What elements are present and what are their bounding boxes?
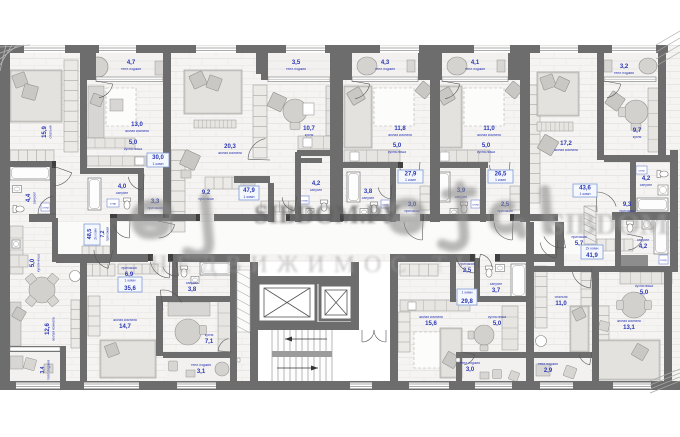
svg-text:27,9: 27,9: [405, 172, 417, 178]
svg-text:спальня: спальня: [49, 125, 53, 138]
svg-text:жилая комната: жилая комната: [113, 318, 137, 322]
svg-text:кухня-ниша: кухня-ниша: [488, 315, 506, 319]
svg-text:жилая комната: жилая комната: [419, 315, 443, 319]
svg-text:тепл.лоджия: тепл.лоджия: [47, 360, 51, 380]
svg-text:жилая комната: жилая комната: [218, 151, 242, 155]
svg-text:тепл.лоджия: тепл.лоджия: [191, 363, 211, 367]
svg-text:санузел: санузел: [186, 281, 198, 285]
svg-text:3,8: 3,8: [364, 189, 373, 195]
svg-text:29,8: 29,8: [461, 299, 473, 305]
svg-text:3,2: 3,2: [620, 64, 629, 70]
svg-text:17,2: 17,2: [560, 141, 572, 147]
svg-text:11,0: 11,0: [555, 301, 567, 307]
svg-text:4,2: 4,2: [642, 176, 651, 182]
svg-text:4,2: 4,2: [639, 244, 648, 250]
svg-text:жилая комната: жилая комната: [125, 129, 149, 133]
svg-text:14,7: 14,7: [119, 324, 131, 330]
svg-text:3,8: 3,8: [188, 287, 197, 293]
svg-text:9,7: 9,7: [633, 128, 642, 134]
svg-text:стир: стир: [660, 258, 667, 262]
svg-text:ТЬ: ТЬ: [432, 252, 478, 278]
svg-text:4,0: 4,0: [118, 184, 127, 190]
svg-text:санузел: санузел: [490, 282, 502, 286]
svg-text:стир: стир: [638, 169, 645, 173]
svg-text:кухня: кухня: [205, 333, 214, 337]
svg-text:жилая комната: жилая комната: [617, 319, 641, 323]
svg-text:13,1: 13,1: [623, 325, 635, 331]
svg-text:7,1: 7,1: [205, 339, 214, 345]
svg-text:тепл.лоджия: тепл.лоджия: [465, 67, 485, 71]
svg-text:4,2: 4,2: [312, 181, 321, 187]
svg-text:1 комн: 1 комн: [405, 178, 416, 182]
svg-text:2,9: 2,9: [544, 368, 553, 374]
svg-text:кухня: кухня: [633, 135, 642, 139]
svg-text:5,0: 5,0: [493, 321, 502, 327]
svg-text:12,6: 12,6: [45, 323, 51, 335]
svg-text:стир: стир: [42, 206, 49, 210]
svg-text:1 комн: 1 комн: [243, 195, 254, 199]
svg-text:4,4: 4,4: [26, 193, 32, 202]
svg-text:10,7: 10,7: [303, 126, 315, 132]
svg-text:35,6: 35,6: [124, 286, 136, 292]
svg-text:5,0: 5,0: [30, 258, 36, 267]
svg-text:санузел: санузел: [640, 183, 652, 187]
svg-text:стир: стир: [472, 203, 479, 207]
svg-text:15,6: 15,6: [425, 321, 437, 327]
svg-text:48,5: 48,5: [87, 229, 93, 240]
svg-text:3,5: 3,5: [292, 60, 301, 66]
svg-text:41,9: 41,9: [586, 253, 598, 259]
svg-text:5,0: 5,0: [129, 140, 138, 146]
svg-text:жилая комната: жилая комната: [52, 317, 56, 341]
svg-text:13,0: 13,0: [131, 122, 143, 128]
svg-text:3,1: 3,1: [197, 369, 206, 375]
svg-text:1 комн: 1 комн: [124, 279, 135, 283]
svg-text:3,4: 3,4: [40, 366, 46, 373]
svg-text:1 комн: 1 комн: [495, 178, 506, 182]
svg-text:1 комн: 1 комн: [461, 291, 472, 295]
svg-text:2х комн: 2х комн: [94, 228, 98, 240]
svg-text:жилая комната: жилая комната: [388, 133, 412, 137]
svg-text:стир: стир: [110, 202, 117, 206]
svg-text:кухня-ниша: кухня-ниша: [388, 150, 406, 154]
svg-text:5,0: 5,0: [482, 143, 491, 149]
svg-text:НЕДВИЖИМОС: НЕДВИЖИМОС: [150, 252, 416, 278]
svg-text:жилая комната: жилая комната: [477, 133, 501, 137]
svg-text:SIBDOM.РУ: SIBDOM.РУ: [254, 200, 400, 229]
svg-text:тепл.лоджия: тепл.лоджия: [286, 67, 306, 71]
svg-text:2х комн: 2х комн: [586, 247, 599, 251]
svg-text:тепл.лоджия: тепл.лоджия: [614, 71, 634, 75]
svg-text:прихожая: прихожая: [121, 266, 136, 270]
svg-text:30,0: 30,0: [152, 155, 164, 161]
svg-text:4,1: 4,1: [471, 60, 480, 66]
svg-text:3,0: 3,0: [466, 367, 475, 373]
svg-text:кухня-ниша: кухня-ниша: [124, 147, 142, 151]
svg-text:тепл.лоджия: тепл.лоджия: [538, 362, 558, 366]
svg-text:20,3: 20,3: [224, 144, 236, 150]
svg-text:5,0: 5,0: [640, 290, 649, 296]
svg-text:тепл.лоджия: тепл.лоджия: [121, 67, 141, 71]
svg-text:11,8: 11,8: [394, 126, 406, 132]
svg-text:4,3: 4,3: [381, 60, 390, 66]
svg-text:3,7: 3,7: [492, 288, 501, 294]
svg-text:15,9: 15,9: [42, 126, 48, 138]
svg-text:тепл.лоджия: тепл.лоджия: [460, 361, 480, 365]
svg-text:санузел: санузел: [33, 192, 37, 204]
svg-text:26,5: 26,5: [495, 172, 507, 178]
svg-text:санузел: санузел: [310, 188, 322, 192]
svg-text:1 комн: 1 комн: [152, 162, 163, 166]
svg-text:спальня: спальня: [555, 295, 568, 299]
svg-text:43,6: 43,6: [579, 186, 591, 192]
svg-text:5,0: 5,0: [393, 143, 402, 149]
svg-text:11,0: 11,0: [483, 126, 495, 132]
svg-text:санузел: санузел: [116, 191, 128, 195]
svg-text:SIBDOM: SIBDOM: [548, 206, 668, 241]
svg-text:кухня: кухня: [305, 133, 314, 137]
svg-text:1 комн: 1 комн: [579, 192, 590, 196]
svg-text:кухня-ниша: кухня-ниша: [37, 254, 41, 272]
svg-text:4,7: 4,7: [127, 60, 136, 66]
svg-text:прихожая: прихожая: [106, 227, 110, 241]
svg-text:47,9: 47,9: [243, 188, 255, 194]
svg-text:кухня-ниша: кухня-ниша: [635, 284, 653, 288]
svg-text:кухня-ниша: кухня-ниша: [477, 150, 495, 154]
svg-text:тепл.лоджия: тепл.лоджия: [375, 67, 395, 71]
svg-text:жилая комната: жилая комната: [554, 148, 578, 152]
